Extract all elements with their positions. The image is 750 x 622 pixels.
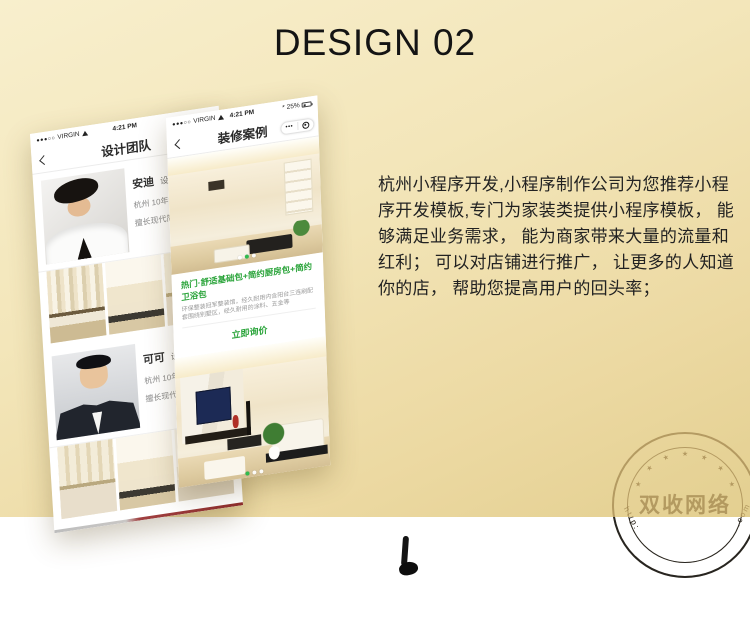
photo-art-shelves (283, 158, 314, 216)
photo-art-speaker (246, 401, 252, 436)
clock-label: 4:21 PM (230, 109, 255, 120)
intro-text: 杭州小程序开发,小程序制作公司为您推荐小程序开发模板,专门为家装类提供小程序模板… (378, 172, 738, 302)
case-thumbnail[interactable] (116, 430, 176, 510)
back-icon[interactable] (174, 139, 184, 149)
nav-title: 设计团队 (101, 134, 152, 160)
member-name: 安迪 (132, 176, 155, 191)
photo-art-plant (260, 420, 287, 449)
member-photo (41, 168, 130, 264)
menu-dots-icon[interactable]: ••• (285, 124, 293, 131)
carousel-dot[interactable] (238, 255, 242, 260)
case-thumbnail[interactable] (46, 263, 106, 343)
carousel-dot-active[interactable] (245, 471, 249, 476)
miniprogram-capsule: ••• (280, 117, 314, 135)
carrier-label: VIRGIN (57, 131, 80, 141)
case-photo-carousel[interactable] (167, 136, 322, 275)
signal-strength-icon: ●●●○○ (36, 135, 55, 144)
carousel-dot[interactable] (252, 470, 256, 475)
nav-title: 装修案例 (217, 121, 267, 147)
member-name: 可可 (143, 352, 166, 367)
back-icon[interactable] (39, 155, 49, 165)
photo-art-plant (291, 219, 311, 239)
phone-mockup-cases: ●●●○○ VIRGIN 4:21 PM * 25% 装修案例 ••• (166, 95, 330, 487)
clock-label: 4:21 PM (112, 122, 137, 133)
photo-art-tv (195, 386, 231, 424)
case-thumbnail[interactable] (105, 254, 165, 334)
signal-strength-icon: ●●●○○ (172, 119, 191, 128)
battery-percent-label: 25% (287, 102, 300, 111)
page-title: DESIGN 02 (0, 22, 750, 64)
wifi-icon (81, 130, 87, 136)
case-thumbnail[interactable] (57, 439, 117, 519)
page: DESIGN 02 杭州小程序开发,小程序制作公司为您推荐小程序开发模板,专门为… (0, 0, 750, 622)
member-photo (52, 344, 141, 440)
battery-icon (302, 101, 312, 107)
home-circle-icon[interactable] (302, 121, 309, 129)
case-photo-carousel[interactable] (174, 336, 330, 488)
bluetooth-icon: * (282, 104, 285, 111)
carousel-dot-active[interactable] (245, 254, 249, 259)
carousel-dot[interactable] (259, 469, 263, 474)
carousel-dot[interactable] (252, 253, 256, 258)
photo-art-cabinet (208, 180, 225, 192)
carrier-label: VIRGIN (193, 115, 216, 125)
wifi-icon (217, 114, 223, 120)
